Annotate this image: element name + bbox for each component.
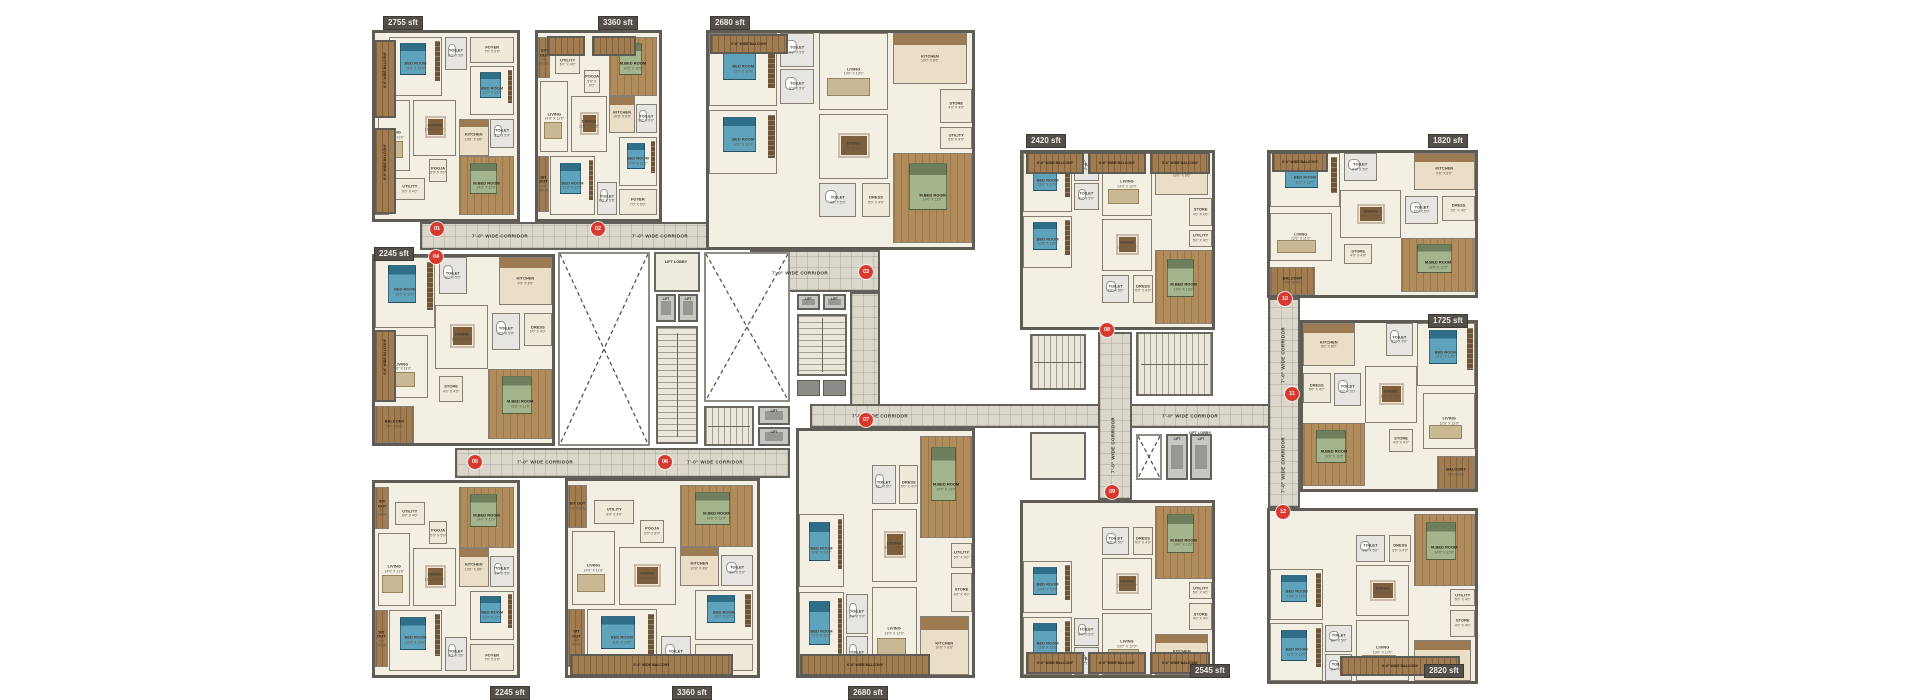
room-label: DRESS5'0" X 4'0" — [1134, 537, 1153, 546]
room-dim: 10'0" X 8'6" — [921, 646, 967, 650]
balcony-strip: 6'-6" WIDE BALCONY — [1150, 152, 1210, 174]
room-name: BED ROOM — [732, 137, 754, 142]
room-label: STORE4'0" X 4'0" — [440, 385, 463, 394]
room-label: KITCHEN10'6" X 8'6" — [610, 111, 633, 120]
room-name: LIVING — [847, 66, 860, 71]
room-label: KITCHEN9'6" X 8'0" — [1304, 340, 1354, 349]
room-label: TOILET8'0" X 5'0" — [1075, 192, 1098, 201]
room-name: DINING — [1384, 389, 1398, 394]
room-label: BED ROOM11'6" X 13'0" — [390, 62, 441, 71]
room-dim: 8'0" X 5'0" — [491, 134, 513, 138]
room-dim: 4'0" X 4'0" — [1345, 254, 1372, 258]
room-dim: 13'0" X 12'0" — [1103, 644, 1150, 648]
room-label: DINING12'0" X 10'0" — [1357, 587, 1408, 596]
unit-10: BED ROOM11'0" X 12'0"TOILET8'0" X 5'0"KI… — [1267, 150, 1478, 298]
unit-area-badge: 3360 sft — [598, 16, 638, 30]
unit-area-badge: 2755 sft — [383, 16, 423, 30]
room-label: DINING12'6" X 10'6" — [572, 120, 606, 129]
room-living: LIVING12'6" X 11'0" — [1270, 213, 1332, 261]
room-label: M.BED ROOM14'0" X 12'6" — [1156, 538, 1211, 547]
room-label: KITCHEN9'6" X 8'0" — [1415, 167, 1475, 176]
room-utility: UTILITY5'0" X 4'0" — [951, 543, 972, 567]
room-dim: 12'6" X 11'0" — [1271, 237, 1331, 241]
room-toilet: TOILET8'0" X 5'0" — [636, 104, 657, 134]
room-dim: 5'0" X 5'0" — [430, 171, 446, 175]
lift-lobby-label: LIFT LOBBY — [665, 260, 687, 264]
room-pooja: POOJA5'0" X 5'0" — [429, 521, 447, 544]
lift-label: LIFT — [825, 297, 844, 301]
room-kitchen: KITCHEN10'6" X 8'6" — [459, 548, 489, 586]
room-label: TOILET8'0" X 5'0" — [847, 610, 867, 619]
room-living: LIVING13'0" X 12'0" — [819, 33, 887, 110]
room-utility: UTILITY5'0" X 4'0" — [1450, 589, 1475, 606]
room-label: M.BED ROOM14'6" X 12'0" — [460, 181, 513, 190]
room-dim: 11'0" X 12'0" — [1418, 355, 1474, 359]
room-label: KITCHEN10'6" X 8'6" — [460, 563, 488, 572]
balcony-strip: 6'-6" WIDE BALCONY — [1026, 652, 1084, 674]
room-dim: 8'0" X 5'0" — [637, 119, 656, 123]
unit-number-badge: 01 — [430, 222, 444, 236]
balcony-label: 6'-6" WIDE BALCONY — [572, 663, 731, 667]
room-name: M.BED ROOM — [1425, 260, 1451, 265]
room-dim: 4'0" X 4'0" — [1190, 617, 1211, 621]
room-store: STORE4'0" X 4'0" — [1344, 244, 1373, 264]
balcony-strip: 6'-6" WIDE BALCONY — [1088, 652, 1146, 674]
room-dim: 9'6" X 8'0" — [1415, 172, 1475, 176]
room-label: DINING12'6" X 10'6" — [620, 572, 675, 581]
unit-area-badge: 2245 sft — [490, 686, 530, 700]
room-label: LIVING13'0" X 12'0" — [1357, 646, 1408, 655]
room-bed: BED ROOM11'0" X 12'0" — [470, 66, 514, 114]
room-toilet: TOILET8'0" X 5'0" — [492, 313, 520, 350]
room-label: STORE4'0" X 4'0" — [1190, 612, 1211, 621]
balcony-strip: 6'-6" WIDE BALCONY — [710, 34, 788, 54]
unit-number-badge: 04 — [429, 250, 443, 264]
room-toilet: TOILET8'0" X 5'0" — [1334, 373, 1362, 406]
room-name: KITCHEN — [690, 561, 708, 566]
room-dim: 13'6" X 11'6" — [1402, 265, 1474, 269]
room-name: BALCONY — [1446, 467, 1466, 472]
room-name: STORE — [949, 100, 963, 105]
balcony-label: 6'-6" WIDE BALCONY — [1274, 160, 1326, 164]
room-name: TOILET — [730, 565, 744, 570]
room-name: TOILET — [639, 113, 653, 118]
balcony-label: 6'-6" WIDE BALCONY — [802, 663, 928, 667]
balcony-label: 6'-6" WIDE BALCONY — [1028, 661, 1082, 665]
room-name: BALCONY — [1283, 275, 1303, 280]
room-name: BED ROOM — [404, 635, 426, 640]
room-name: LIVING — [1294, 231, 1307, 236]
staircase — [656, 326, 698, 444]
corridor-label: 7'-0" WIDE CORRIDOR — [1162, 414, 1218, 419]
room-foyer: FOYER7'0" X 5'0" — [470, 644, 514, 671]
room-name: DINING — [1120, 579, 1134, 584]
room-dim: 11'0" X 12'6" — [1024, 183, 1071, 187]
room-kitchen: KITCHEN9'6" X 8'0" — [499, 257, 552, 305]
room-name: M.BED ROOM — [1431, 545, 1457, 550]
room-label: M.BED ROOM14'0" X 12'6" — [921, 483, 971, 492]
room-label: SIT OUT4'6" WIDE — [569, 630, 584, 647]
room-dim: 5'0" X 4'0" — [1134, 289, 1153, 293]
room-name: BED ROOM — [481, 610, 503, 615]
room-mbed: M.BED ROOM14'0" X 12'6" — [920, 436, 972, 538]
room-name: STORE — [1394, 436, 1408, 441]
room-bed: BED ROOM10'6" X 12'0" — [709, 110, 777, 174]
room-dim: 10'6" X 10'0" — [1341, 214, 1401, 218]
room-label: TOILET8'0" X 5'0" — [491, 567, 513, 576]
room-name: M.BED ROOM — [1170, 282, 1196, 287]
room-label: TOILET8'6" X 5'0" — [1357, 544, 1384, 553]
room-label: M.BED ROOM13'6" X 11'6" — [489, 400, 551, 409]
unit-number-badge: 06 — [658, 455, 672, 469]
room-dim: 10'6" X 12'0" — [1024, 588, 1071, 592]
staircase — [704, 406, 754, 446]
room-name: KITCHEN — [517, 276, 535, 281]
room-dim: 8'0" X 5'0" — [1075, 632, 1098, 636]
room-dim: 13'0" X 12'0" — [820, 72, 886, 76]
room-dim: 5'0" X 4'0" — [1190, 591, 1211, 595]
room-name: TOILET — [831, 195, 845, 200]
room-dining: DINING12'6" X 10'6" — [413, 548, 456, 606]
room-dining: DINING10'6" X 10'0" — [1340, 190, 1402, 238]
room-name: KITCHEN — [935, 640, 953, 645]
room-dim: 8'0" X 5'0" — [1406, 210, 1437, 214]
room-label: BED ROOM11'0" X 12'0" — [620, 157, 656, 166]
room-dim: 8'0" X 5'0" — [493, 332, 519, 336]
room-label: DRESS5'0" X 4'0" — [863, 196, 890, 205]
room-bed: BED ROOM10'6" X 12'0" — [1023, 561, 1072, 613]
balcony-label: 6'-6" WIDE BALCONY — [1028, 161, 1082, 165]
room-label: LIVING14'0" X 11'6" — [379, 565, 410, 574]
room-label: TOILET8'6" X 5'0" — [1103, 284, 1127, 293]
room-label: BED ROOM11'0" X 12'0" — [471, 86, 513, 95]
room-dining: DINING12'6" X 10'6" — [619, 547, 676, 605]
open-shaft-x — [1136, 434, 1162, 480]
room-name: TOILET — [495, 566, 509, 571]
room-name: UTILITY — [949, 133, 964, 138]
room-dim: 11'0" X 12'6" — [800, 634, 843, 638]
room-name: TOILET — [1353, 162, 1367, 167]
room-name: SIT OUT — [572, 629, 580, 639]
room-store: STORE4'0" X 4'0" — [1189, 603, 1212, 631]
duct — [797, 380, 820, 396]
room-dim: 12'6" X 10'6" — [414, 128, 455, 132]
room-name: LIVING — [548, 111, 561, 116]
room-name: BED ROOM — [810, 628, 832, 633]
room-dim: 5'0" X 5'0" — [585, 80, 599, 88]
room-name: TOILET — [1332, 633, 1346, 638]
room-toilet: TOILET8'0" X 5'0" — [1344, 153, 1377, 181]
room-name: DINING — [455, 332, 469, 337]
room-dim: 13'6" X 11'6" — [1304, 454, 1364, 458]
room-label: BED ROOM11'6" X 13'0" — [390, 636, 441, 645]
room-name: DINING — [582, 119, 596, 124]
room-balcony: BALCONY5'0" WIDE — [375, 406, 414, 443]
room-name: STORE — [1351, 249, 1365, 254]
room-name: BED ROOM — [1037, 640, 1059, 645]
lift: LIFT — [1190, 434, 1212, 480]
unit-05: SIT OUT4'6" WIDEBED ROOM11'6" X 13'0"TOI… — [372, 480, 520, 678]
room-sitout: SIT OUT4'6" WIDE — [568, 485, 587, 528]
room-store: STORE4'0" X 4'0" — [1450, 610, 1475, 637]
room-label: STORE4'0" X 4'0" — [1345, 250, 1372, 259]
room-toilet: TOILET8'0" X 5'6" — [597, 182, 616, 215]
unit-04: BED ROOM11'0" X 12'0"TOILET8'0" X 5'0"KI… — [372, 254, 555, 446]
room-name: SIT OUT — [539, 174, 547, 184]
room-toilet: TOILET8'0" X 5'6" — [445, 37, 468, 70]
room-name: TOILET — [850, 609, 864, 614]
unit-area-badge: 3360 sft — [672, 686, 712, 700]
room-name: KITCHEN — [613, 110, 631, 115]
lift: LIFT — [823, 294, 846, 310]
room-name: M.BED ROOM — [473, 180, 499, 185]
room-label: DINING12'0" X 10'0" — [1103, 241, 1150, 250]
room-name: STORE — [1456, 618, 1470, 623]
room-label: TOILET8'0" X 5'0" — [493, 327, 519, 336]
room-name: TOILET — [1109, 283, 1123, 288]
room-dim: 10'0" X 8'6" — [1156, 174, 1207, 178]
room-dim: 10'0" X 8'6" — [894, 59, 966, 63]
room-label: SIT OUT4'6" WIDE — [539, 175, 548, 192]
room-dim: 13'0" X 12'0" — [873, 631, 916, 635]
room-dim: 12'6" X 10'6" — [572, 124, 606, 128]
room-name: BED ROOM — [1435, 349, 1457, 354]
room-living: LIVING14'0" X 11'6" — [378, 533, 411, 606]
room-label: BALCONY5'0" WIDE — [1271, 276, 1314, 285]
room-name: DRESS — [1310, 382, 1324, 387]
room-balcony: BALCONY5'0" WIDE — [1437, 456, 1475, 489]
room-name: UTILITY — [1193, 233, 1208, 238]
room-dim: 4'0" X 4'0" — [1190, 212, 1211, 216]
room-kitchen: KITCHEN10'6" X 8'6" — [609, 96, 634, 133]
staircase — [1030, 334, 1086, 390]
room-dim: 14'0" X 12'6" — [894, 198, 971, 202]
room-store: STORE4'0" X 4'0" — [439, 376, 464, 402]
room-name: LIVING — [887, 626, 900, 631]
room-label: BED ROOM11'0" X 12'6" — [1024, 641, 1071, 650]
room-label: UTILITY6'0" X 4'0" — [595, 508, 633, 517]
room-dim: 5'0" X 4'0" — [1451, 598, 1474, 602]
lift: LIFT — [797, 294, 820, 310]
room-dress: DRESS5'0" X 4'0" — [1389, 535, 1412, 562]
room-name: DRESS — [1136, 536, 1150, 541]
room-label: BED ROOM11'0" X 12'6" — [710, 65, 776, 74]
room-label: BED ROOM11'0" X 12'0" — [696, 611, 753, 620]
room-dim: 8'0" X 5'6" — [598, 199, 615, 203]
room-dim: 8'0" X 5'0" — [781, 87, 813, 91]
balcony-strip — [547, 36, 585, 56]
room-name: UTILITY — [560, 57, 575, 62]
room-dim: 8'0" X 5'0" — [1326, 639, 1351, 643]
room-dim: 5'0" X 4'0" — [900, 485, 917, 489]
room-dim: 4'6" WIDE — [539, 58, 549, 66]
room-utility: UTILITY6'0" X 4'0" — [395, 178, 425, 200]
corridor-segment — [850, 292, 880, 408]
balcony-label: 6'-6" WIDE BALCONY — [1090, 661, 1144, 665]
room-dim: 12'0" X 10'0" — [873, 546, 916, 550]
room-bed: BED ROOM11'0" X 12'0" — [375, 257, 435, 328]
room-dining: DINING12'0" X 10'0" — [1102, 558, 1151, 610]
room-dim: 8'6" X 5'0" — [1357, 549, 1384, 553]
room-label: BED ROOM11'0" X 12'0" — [376, 288, 434, 297]
room-name: BED ROOM — [1286, 589, 1308, 594]
room-toilet: TOILET8'0" X 5'0" — [490, 556, 514, 587]
room-name: BED ROOM — [1294, 175, 1316, 180]
room-mbed: M.BED ROOM13'6" X 11'6" — [1303, 423, 1365, 486]
room-dim: 14'0" X 11'6" — [541, 117, 567, 121]
room-name: TOILET — [1363, 543, 1377, 548]
room-dim: 8'0" X 5'0" — [1387, 340, 1413, 344]
room-label: TOILET8'0" X 5'0" — [1387, 335, 1413, 344]
room-dim: 8'6" X 5'0" — [1103, 541, 1127, 545]
room-name: TOILET — [1109, 536, 1123, 541]
room-kitchen: KITCHEN10'6" X 8'6" — [459, 119, 489, 156]
room-dining: DINING12'0" X 10'0" — [1356, 565, 1409, 616]
room-label: M.BED ROOM14'0" X 12'6" — [1415, 546, 1475, 555]
unit-number-badge: 09 — [1105, 485, 1119, 499]
room-name: BED ROOM — [481, 85, 503, 90]
room-name: DINING — [640, 571, 654, 576]
room-label: DINING10'6" X 10'0" — [1341, 210, 1401, 219]
room-label: BALCONY5'0" WIDE — [376, 420, 413, 429]
room-label: DRESS5'0" X 4'0" — [1390, 544, 1411, 553]
room-name: DINING — [887, 540, 901, 545]
room-label: LIVING12'6" X 11'0" — [1424, 417, 1474, 426]
room-toilet: TOILET8'0" X 5'0" — [1405, 196, 1438, 224]
room-name: UTILITY — [1455, 592, 1470, 597]
room-name: UTILITY — [954, 550, 969, 555]
room-mbed: M.BED ROOM14'6" X 12'0" — [459, 156, 514, 216]
room-mbed: M.BED ROOM14'6" X 12'0" — [459, 487, 514, 548]
room-dim: 10'6" X 8'6" — [460, 137, 488, 141]
room-label: DINING12'0" X 10'0" — [873, 541, 916, 550]
balcony-strip: 6'-6" WIDE BALCONY — [374, 330, 396, 402]
room-dim: 8'0" X 5'0" — [847, 614, 867, 618]
room-name: TOILET — [449, 48, 463, 53]
room-label: M.BED ROOM13'6" X 11'6" — [1304, 450, 1364, 459]
room-dim: 8'6" X 5'0" — [820, 200, 855, 204]
balcony-strip: 6'-6" WIDE BALCONY — [374, 40, 396, 118]
room-toilet: TOILET8'6" X 5'0" — [819, 183, 856, 217]
room-dim: 14'6" X 12'0" — [610, 67, 655, 71]
room-mbed: M.BED ROOM14'6" X 12'0" — [680, 485, 754, 547]
room-dim: 12'6" X 10'6" — [620, 576, 675, 580]
room-label: M.BED ROOM14'6" X 12'0" — [460, 513, 513, 522]
room-name: BED ROOM — [810, 545, 832, 550]
room-dim: 4'0" X 4'0" — [440, 389, 463, 393]
room-dim: 4'6" WIDE — [376, 639, 387, 647]
balcony-strip: 6'-6" WIDE BALCONY — [1272, 152, 1328, 172]
unit-number-badge: 03 — [859, 265, 873, 279]
room-toilet: TOILET8'6" X 5'0" — [1102, 275, 1128, 303]
room-label: BED ROOM10'6" X 12'0" — [710, 138, 776, 147]
room-dim: 8'0" X 5'6" — [446, 654, 467, 658]
unit-number-badge: 05 — [468, 455, 482, 469]
room-toilet: TOILET8'0" X 5'0" — [1074, 618, 1099, 646]
room-label: LIVING12'6" X 11'0" — [1271, 232, 1331, 241]
unit-03: BED ROOM11'0" X 12'6"TOILET8'0" X 5'0"TO… — [706, 30, 975, 250]
room-name: BED ROOM — [1286, 647, 1308, 652]
room-label: STORE4'0" X 4'0" — [941, 101, 971, 110]
room-dim: 5'0" X 4'0" — [941, 138, 971, 142]
room-label: POOJA5'0" X 5'0" — [430, 529, 446, 538]
room-bed: BED ROOM11'6" X 13'0" — [389, 37, 442, 97]
room-bed: BED ROOM10'6" X 12'0" — [1270, 569, 1323, 620]
room-name: FOYER — [485, 44, 499, 49]
room-dim: 10'6" X 12'0" — [710, 142, 776, 146]
room-label: DRESS5'0" X 4'0" — [1304, 383, 1330, 392]
room-name: TOILET — [1079, 191, 1093, 196]
room-dim: 11'6" X 13'0" — [390, 641, 441, 645]
room-name: DINING — [847, 141, 861, 146]
room-dim: 7'0" X 5'0" — [620, 203, 656, 207]
room-dim: 10'6" X 8'6" — [460, 568, 488, 572]
room-label: SIT OUT4'6" WIDE — [569, 502, 586, 511]
room-store: STORE4'0" X 4'0" — [951, 573, 972, 612]
room-dining: DINING12'0" X 10'0" — [819, 114, 887, 178]
room-dim: 11'0" X 12'0" — [376, 293, 434, 297]
room-name: FOYER — [631, 197, 645, 202]
room-label: POOJA5'0" X 5'0" — [585, 75, 599, 88]
room-bed: BED ROOM11'6" X 13'0" — [550, 156, 595, 216]
room-label: STORE4'0" X 4'0" — [1390, 437, 1412, 446]
room-name: STORE — [1194, 207, 1208, 212]
room-dim: 4'6" WIDE — [569, 506, 586, 510]
room-name: TOILET — [449, 649, 463, 654]
unit-area-badge: 1725 sft — [1428, 314, 1468, 328]
room-label: KITCHEN9'6" X 8'0" — [500, 277, 551, 286]
room-name: BED ROOM — [1037, 236, 1059, 241]
room-label: UTILITY5'0" X 4'0" — [941, 134, 971, 143]
room-label: M.BED ROOM13'6" X 11'6" — [1402, 261, 1474, 270]
room-label: STORE4'0" X 4'0" — [1451, 619, 1474, 628]
room-name: BED ROOM — [1037, 177, 1059, 182]
room-name: UTILITY — [402, 184, 417, 189]
room-dress: DRESS5'0" X 4'0" — [862, 183, 891, 217]
room-name: BED ROOM — [611, 635, 633, 640]
room-dim: 11'0" X 12'0" — [471, 616, 513, 620]
unit-area-badge: 2245 sft — [374, 247, 414, 261]
room-label: TOILET8'6" X 5'0" — [873, 480, 895, 489]
corridor-label: 7'-0" WIDE CORRIDOR — [772, 271, 828, 276]
room-utility: UTILITY5'0" X 4'0" — [1189, 582, 1212, 599]
room-dim: 14'6" X 12'0" — [460, 518, 513, 522]
room-label: UTILITY6'0" X 4'0" — [556, 58, 579, 67]
room-label: TOILET8'0" X 5'0" — [722, 566, 752, 575]
balcony-label: 6'-6" WIDE BALCONY — [383, 357, 387, 375]
room-dim: 10'6" X 10'0" — [1366, 395, 1416, 399]
room-name: DINING — [1363, 209, 1377, 214]
room-store: STORE4'0" X 4'0" — [1189, 198, 1212, 226]
room-bed: BED ROOM11'0" X 12'0" — [1417, 323, 1475, 386]
room-bed: BED ROOM11'6" X 13'0" — [389, 610, 442, 671]
room-label: POOJA5'0" X 5'0" — [430, 166, 446, 175]
room-label: BED ROOM10'6" X 12'0" — [1271, 590, 1322, 599]
room-label: BED ROOM11'6" X 13'0" — [588, 636, 656, 645]
room-dim: 8'0" X 5'0" — [1345, 167, 1376, 171]
room-label: FOYER7'0" X 5'0" — [471, 653, 513, 662]
room-dim: 11'0" X 12'0" — [1271, 180, 1339, 184]
room-label: TOILET8'0" X 5'6" — [598, 194, 615, 203]
room-balcony: BALCONY5'0" WIDE — [1270, 267, 1315, 295]
room-name: DRESS — [1393, 543, 1407, 548]
room-bed: BED ROOM11'0" X 12'6" — [1270, 623, 1323, 681]
room-name: TOILET — [1341, 384, 1355, 389]
room-dim: 8'6" X 5'0" — [1103, 289, 1127, 293]
room-label: KITCHEN10'0" X 8'6" — [894, 54, 966, 63]
room-label: LIVING14'0" X 11'6" — [573, 564, 614, 573]
unit-number-badge: 10 — [1278, 292, 1292, 306]
